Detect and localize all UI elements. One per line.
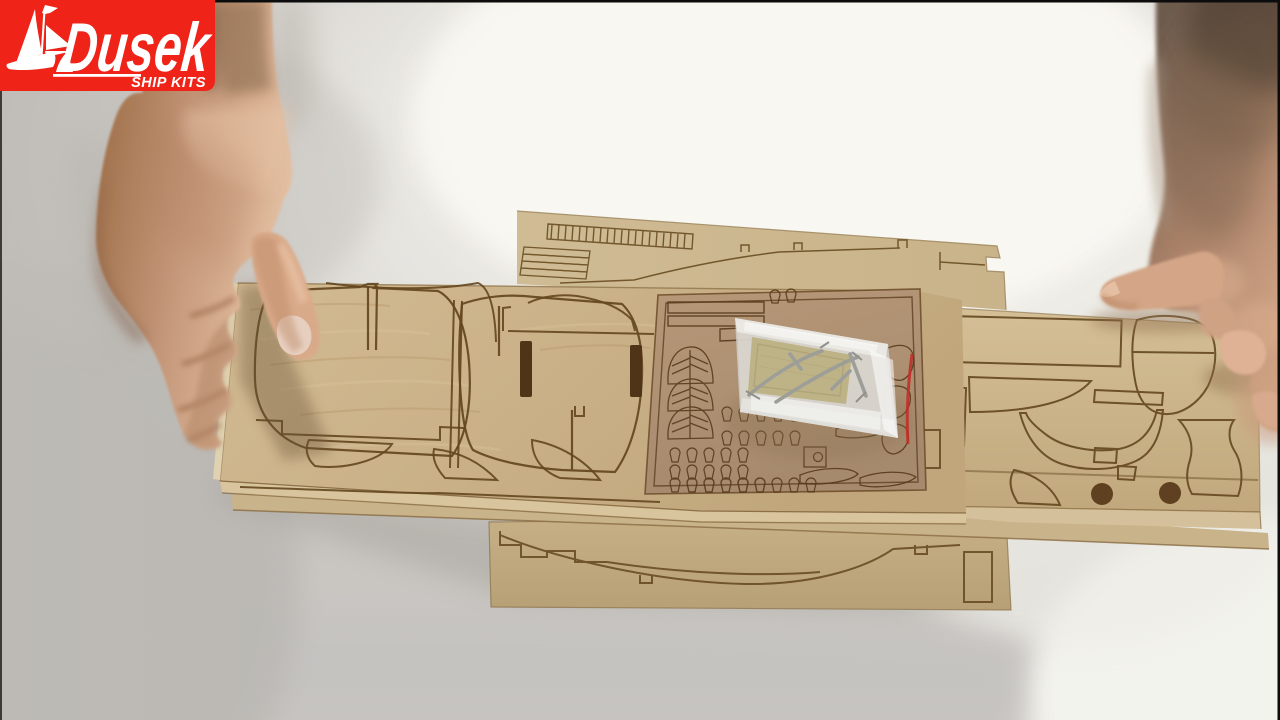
svg-text:SHIP KITS: SHIP KITS: [131, 75, 206, 91]
